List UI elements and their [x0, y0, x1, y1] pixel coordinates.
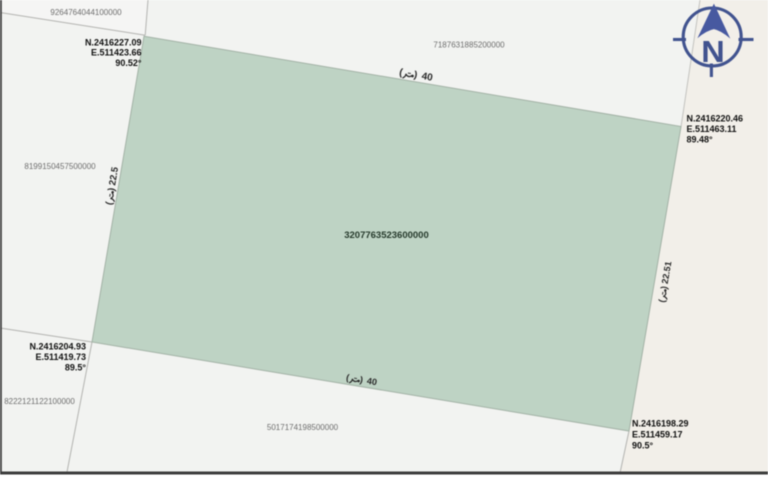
svg-text:N.2416204.93: N.2416204.93 — [29, 342, 86, 352]
svg-text:E.511463.11: E.511463.11 — [687, 124, 737, 134]
svg-text:40: 40 — [421, 71, 434, 84]
svg-text:E.511423.66: E.511423.66 — [91, 48, 142, 58]
svg-text:E.511419.73: E.511419.73 — [35, 352, 86, 362]
svg-text:8199150457500000: 8199150457500000 — [24, 162, 96, 171]
svg-text:N.2416198.29: N.2416198.29 — [632, 419, 689, 429]
svg-text:90.5°: 90.5° — [632, 441, 654, 451]
svg-text:N: N — [701, 34, 725, 69]
svg-text:E.511459.17: E.511459.17 — [632, 430, 683, 440]
svg-text:N.2416220.46: N.2416220.46 — [687, 114, 744, 124]
svg-text:9264764044100000: 9264764044100000 — [50, 8, 122, 17]
svg-text:40: 40 — [366, 376, 378, 388]
svg-text:7187631885200000: 7187631885200000 — [433, 41, 505, 50]
svg-text:5017174198500000: 5017174198500000 — [267, 423, 339, 432]
svg-text:N.2416227.09: N.2416227.09 — [85, 38, 142, 48]
svg-text:90.52°: 90.52° — [115, 58, 142, 68]
svg-text:3207763523600000: 3207763523600000 — [344, 230, 429, 241]
svg-text:89.5°: 89.5° — [65, 363, 87, 373]
svg-text:89.48°: 89.48° — [687, 135, 714, 145]
svg-text:8222121122100000: 8222121122100000 — [4, 397, 75, 406]
